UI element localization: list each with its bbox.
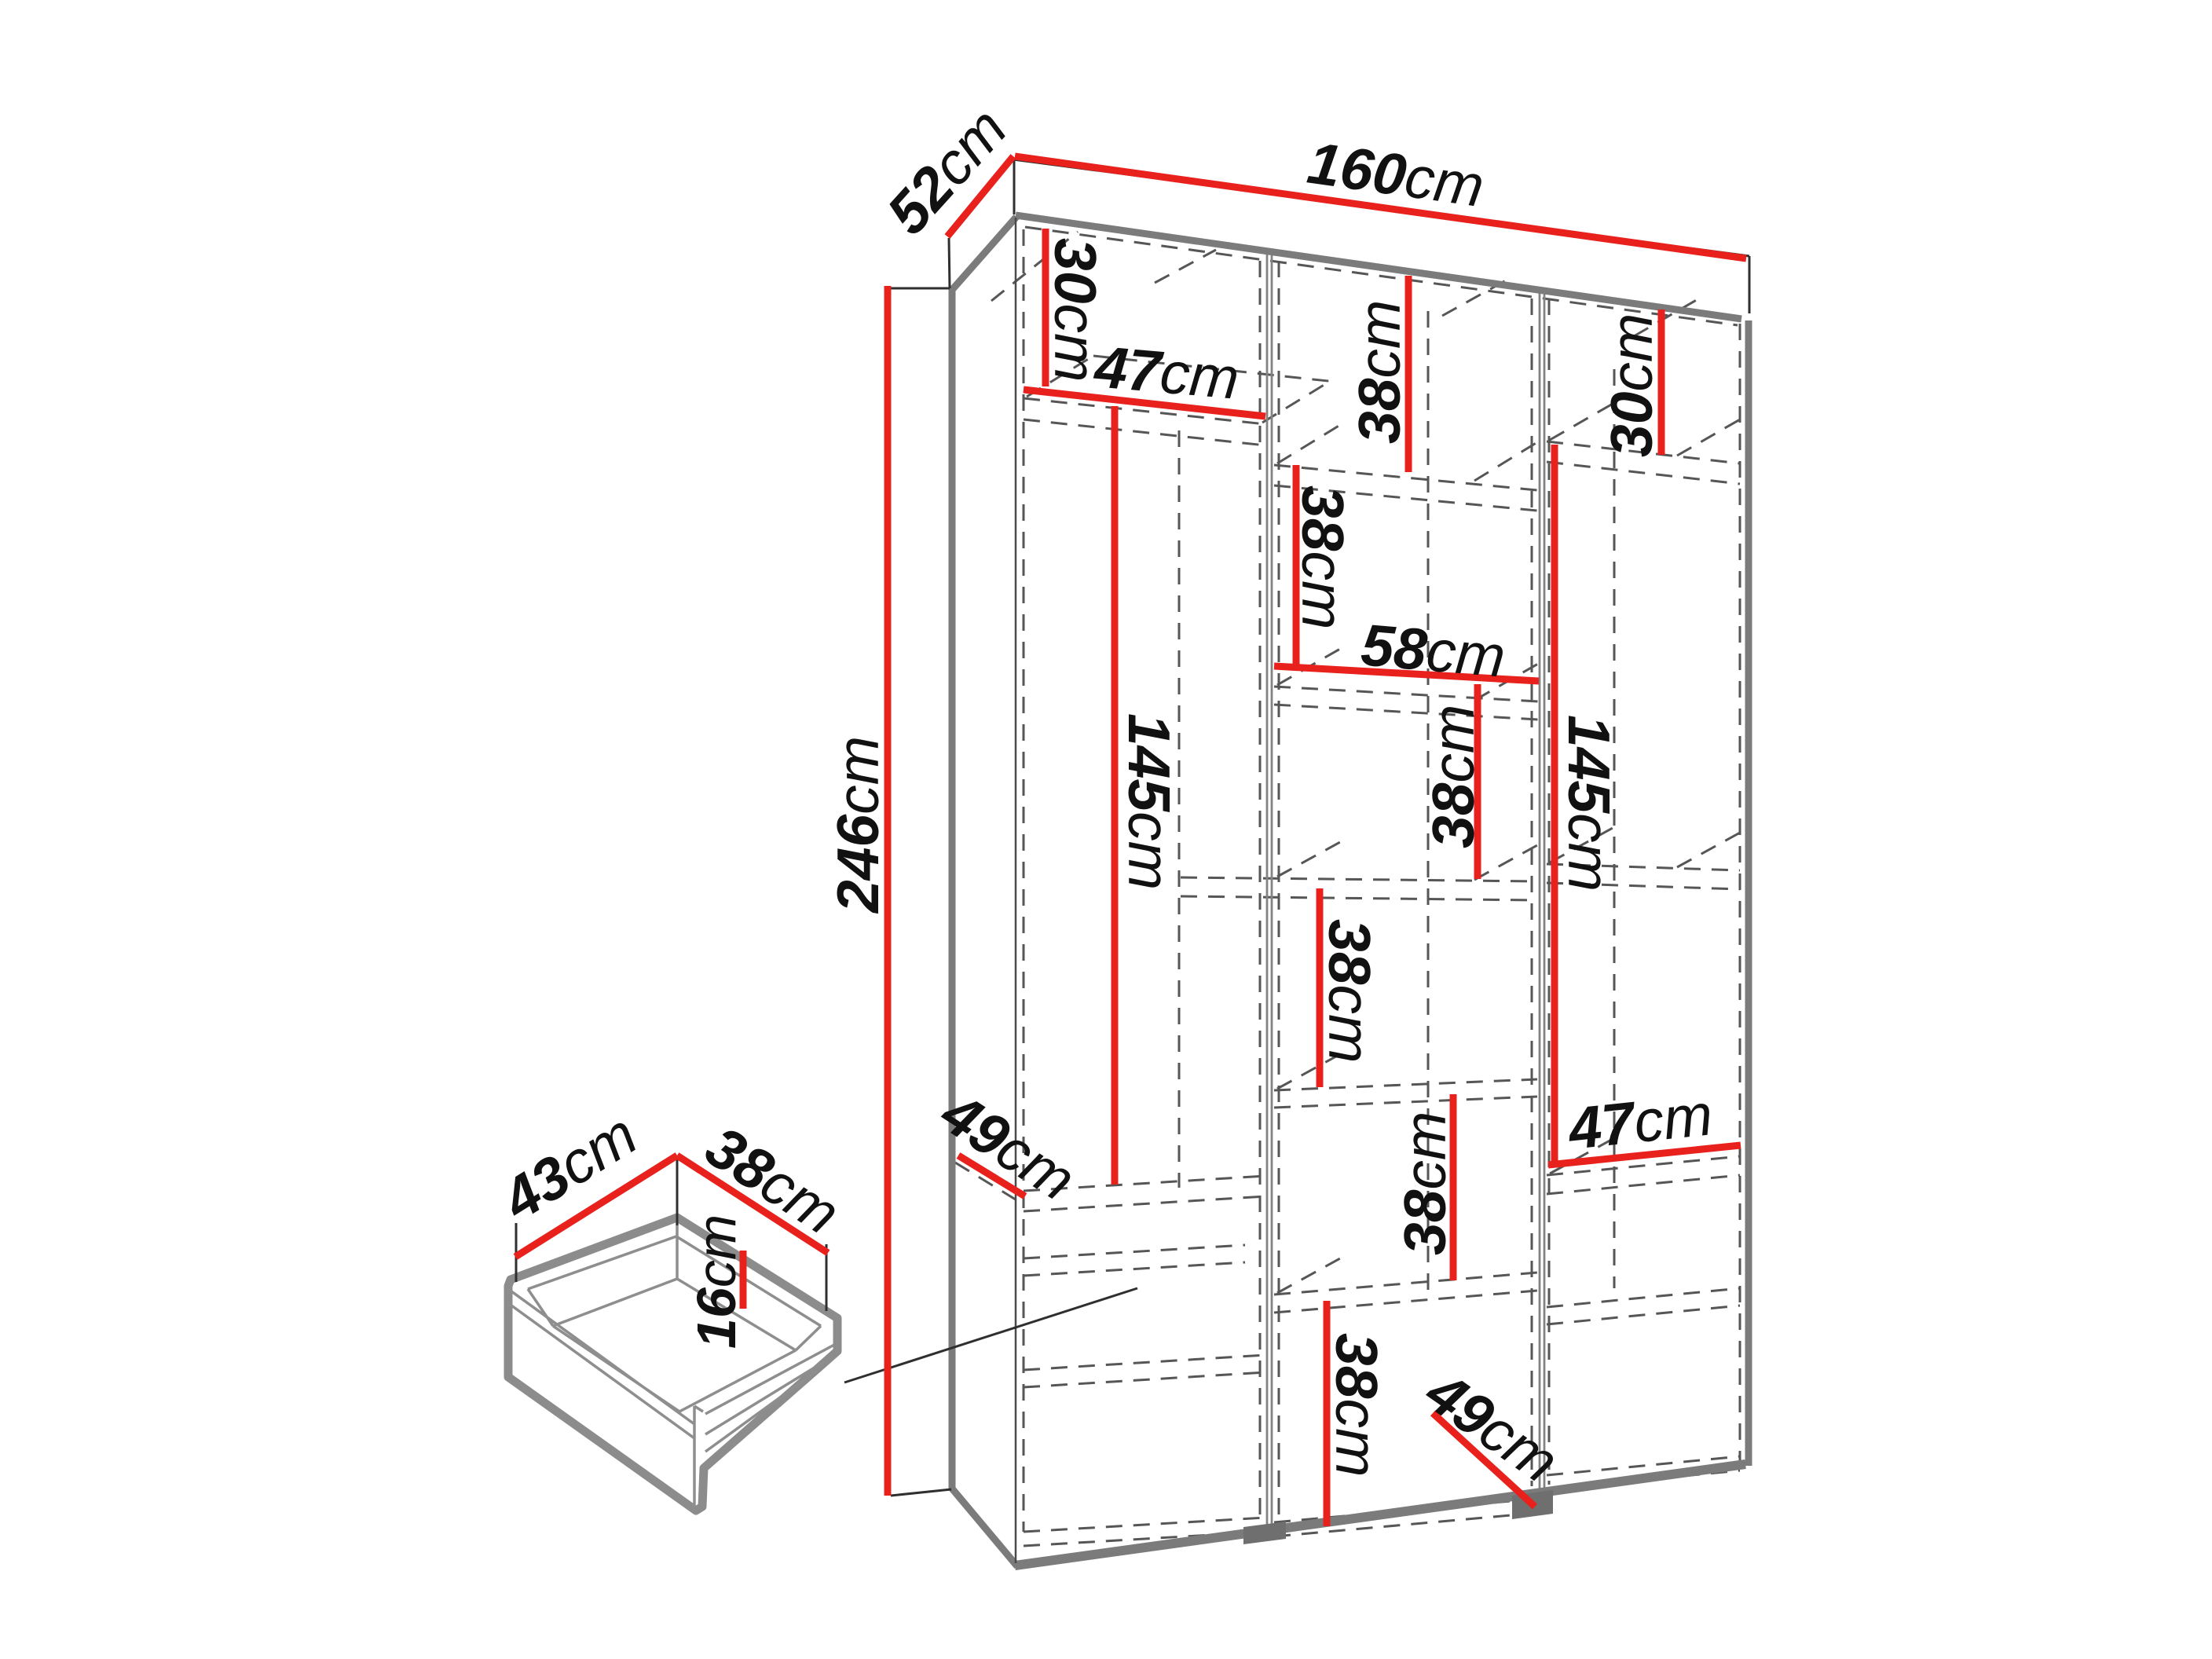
svg-text:145cm: 145cm bbox=[1556, 715, 1622, 892]
svg-text:145cm: 145cm bbox=[1116, 713, 1182, 890]
svg-text:38cm: 38cm bbox=[1290, 485, 1356, 629]
svg-text:246cm: 246cm bbox=[825, 736, 891, 914]
svg-text:58cm: 58cm bbox=[1359, 611, 1508, 690]
svg-text:38cm: 38cm bbox=[1324, 1333, 1390, 1477]
svg-text:38cm: 38cm bbox=[1346, 300, 1412, 444]
svg-text:38cm: 38cm bbox=[1420, 705, 1486, 848]
svg-text:38cm: 38cm bbox=[1317, 919, 1382, 1063]
svg-text:30cm: 30cm bbox=[1599, 313, 1664, 457]
svg-text:47cm: 47cm bbox=[1091, 333, 1242, 412]
svg-text:16cm: 16cm bbox=[686, 1214, 747, 1349]
svg-text:38cm: 38cm bbox=[1392, 1111, 1458, 1255]
